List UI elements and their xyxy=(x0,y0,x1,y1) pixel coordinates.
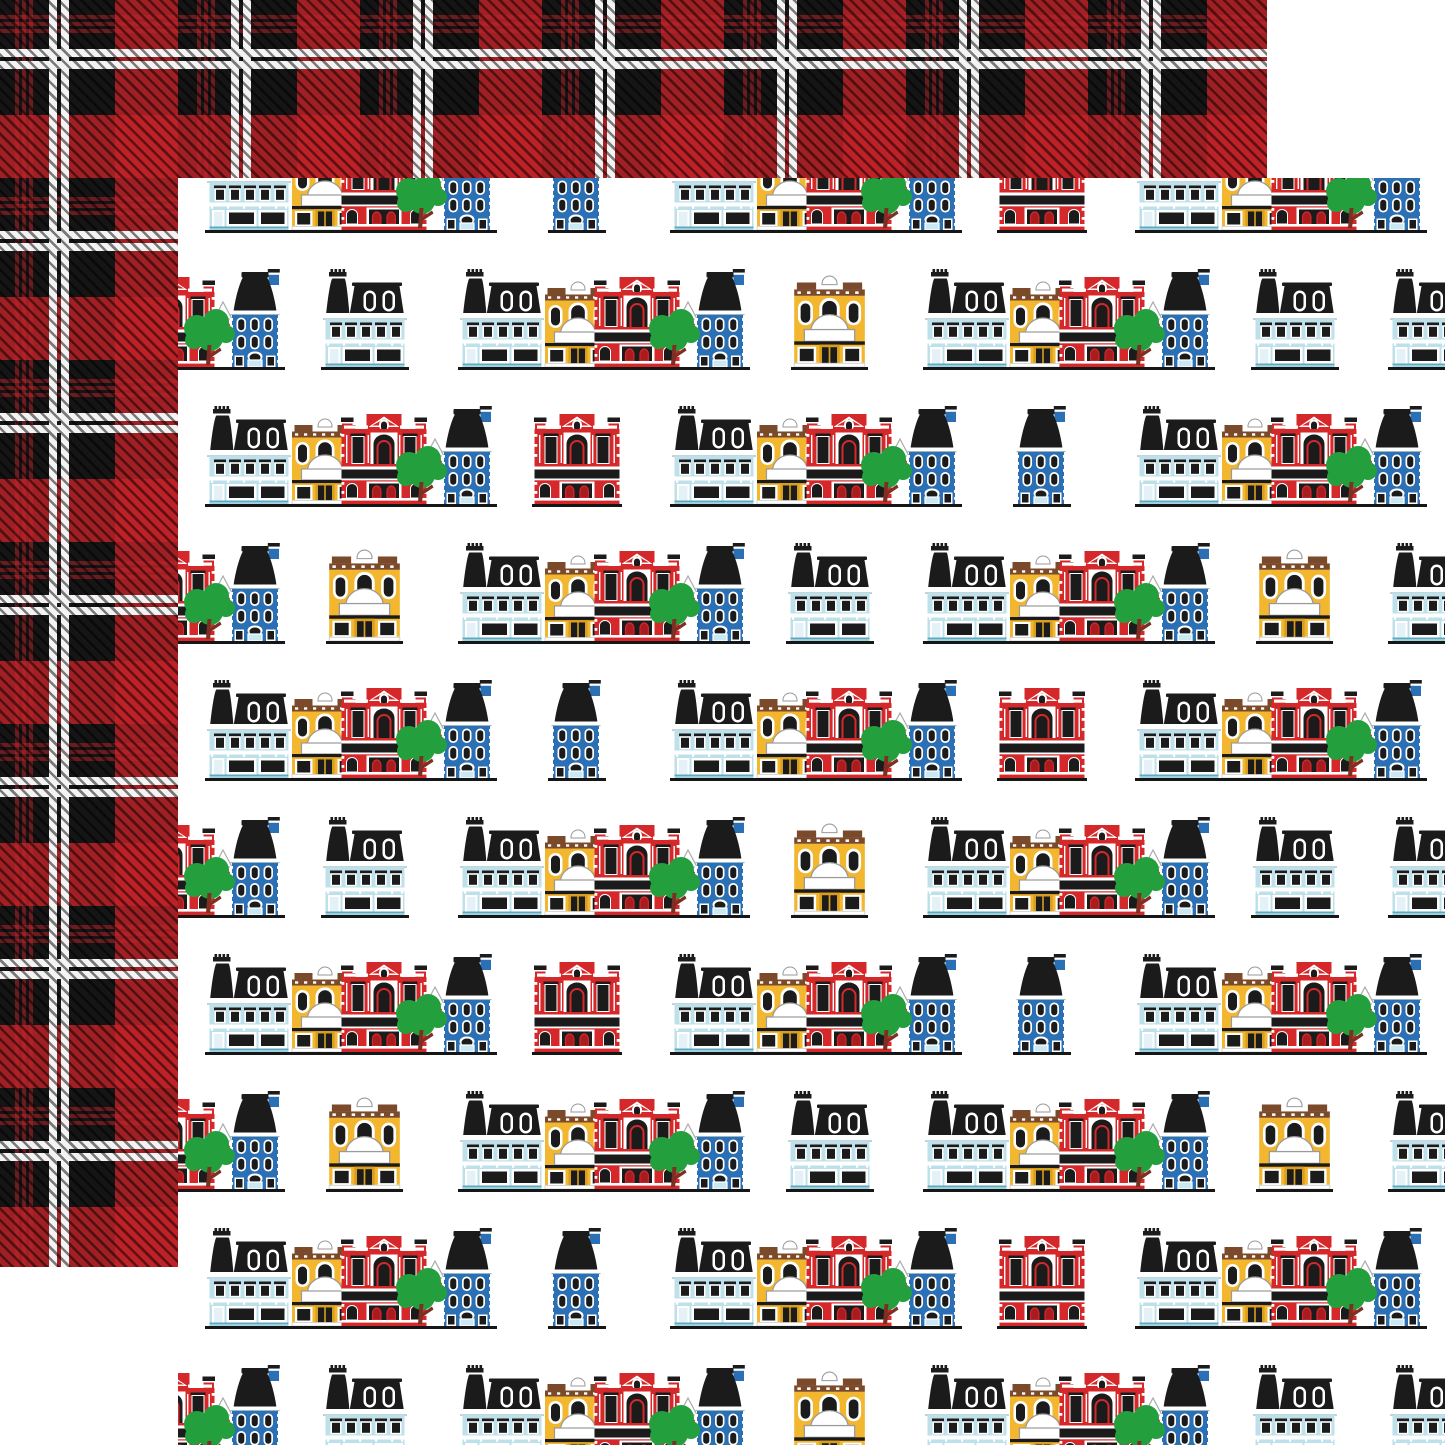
building-cluster xyxy=(923,543,1215,644)
building-cluster xyxy=(670,406,962,507)
lone-building-light-blue-victorian xyxy=(1251,1365,1339,1445)
building-cluster xyxy=(178,817,285,918)
building-rows-pattern xyxy=(178,178,1445,1445)
building-cluster xyxy=(1135,178,1427,233)
lone-building-blue-rowhouse xyxy=(1013,954,1071,1055)
building-cluster xyxy=(670,680,962,781)
lone-building-blue-rowhouse xyxy=(548,680,606,781)
lone-building-yellow-dome-shop xyxy=(791,275,868,370)
lone-building-light-blue-victorian xyxy=(321,817,409,918)
building-cluster xyxy=(670,1228,962,1329)
building-cluster xyxy=(670,954,962,1055)
building-cluster xyxy=(458,269,750,370)
lone-building-yellow-dome-shop xyxy=(1256,1097,1333,1192)
building-cluster xyxy=(1135,406,1427,507)
building-cluster xyxy=(205,406,497,507)
lone-building-light-blue-victorian xyxy=(321,269,409,370)
lone-building-light-blue-victorian xyxy=(321,1365,409,1445)
lone-building-yellow-dome-shop xyxy=(326,1097,403,1192)
building-cluster xyxy=(923,269,1215,370)
building-cluster xyxy=(205,1228,497,1329)
lone-building-yellow-dome-shop xyxy=(1256,549,1333,644)
lone-building-yellow-dome-shop xyxy=(791,823,868,918)
lone-building-blue-rowhouse xyxy=(548,1228,606,1329)
lone-building-light-blue-victorian xyxy=(1251,269,1339,370)
lone-building-yellow-dome-shop xyxy=(791,1371,868,1445)
building-cluster xyxy=(1388,1091,1445,1192)
lone-building-blue-rowhouse xyxy=(1013,406,1071,507)
building-cluster xyxy=(205,954,497,1055)
lone-building-red-building xyxy=(532,962,622,1055)
building-cluster xyxy=(178,543,285,644)
building-cluster xyxy=(178,1091,285,1192)
lone-building-yellow-dome-shop xyxy=(326,549,403,644)
lone-building-red-building xyxy=(997,178,1087,233)
building-cluster xyxy=(923,1091,1215,1192)
building-cluster xyxy=(1135,680,1427,781)
product-image-canvas: { "scene": { "description": "Two overlap… xyxy=(0,0,1445,1445)
building-cluster xyxy=(205,178,497,233)
lone-building-red-building xyxy=(997,1236,1087,1329)
lone-building-blue-rowhouse xyxy=(548,178,606,233)
main-street-paper-sheet xyxy=(178,178,1445,1445)
building-cluster xyxy=(1135,954,1427,1055)
building-cluster xyxy=(458,543,750,644)
lone-building-red-building xyxy=(997,688,1087,781)
building-cluster xyxy=(670,178,962,233)
lone-building-light-blue-victorian xyxy=(786,543,874,644)
lone-building-light-blue-victorian xyxy=(786,1091,874,1192)
building-cluster xyxy=(1388,1365,1445,1445)
building-cluster xyxy=(458,1091,750,1192)
building-cluster xyxy=(205,680,497,781)
lone-building-red-building xyxy=(532,414,622,507)
building-cluster xyxy=(458,1365,750,1445)
building-cluster xyxy=(1135,1228,1427,1329)
building-cluster xyxy=(923,817,1215,918)
lone-building-light-blue-victorian xyxy=(1251,817,1339,918)
building-cluster xyxy=(923,1365,1215,1445)
building-cluster xyxy=(1388,543,1445,644)
building-cluster xyxy=(178,269,285,370)
building-cluster xyxy=(178,1365,285,1445)
building-cluster xyxy=(1388,817,1445,918)
building-cluster xyxy=(458,817,750,918)
building-cluster xyxy=(1388,269,1445,370)
